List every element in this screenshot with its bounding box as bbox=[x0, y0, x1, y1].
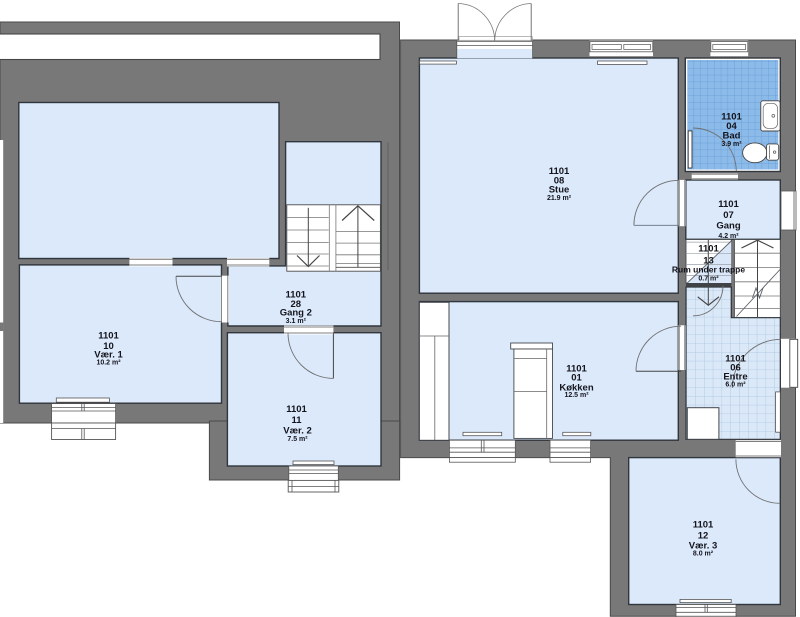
svg-text:11: 11 bbox=[291, 415, 302, 426]
svg-text:Vær. 2: Vær. 2 bbox=[283, 426, 312, 437]
svg-text:8.0 m²: 8.0 m² bbox=[693, 551, 714, 558]
svg-text:Bad: Bad bbox=[723, 131, 741, 142]
svg-text:1101: 1101 bbox=[98, 331, 119, 342]
svg-text:6.0 m²: 6.0 m² bbox=[725, 382, 746, 389]
svg-text:7.5 m²: 7.5 m² bbox=[287, 436, 308, 443]
svg-text:21.9 m²: 21.9 m² bbox=[547, 195, 572, 202]
svg-text:10.2 m²: 10.2 m² bbox=[96, 360, 121, 367]
svg-text:1101: 1101 bbox=[693, 520, 714, 531]
svg-text:07: 07 bbox=[723, 210, 734, 221]
svg-text:Rum under trappe: Rum under trappe bbox=[672, 265, 745, 275]
svg-text:3.1 m²: 3.1 m² bbox=[286, 318, 307, 325]
svg-text:12.5 m²: 12.5 m² bbox=[564, 392, 589, 399]
svg-text:Gang 2: Gang 2 bbox=[280, 308, 312, 319]
svg-text:0.7 m²: 0.7 m² bbox=[698, 276, 719, 283]
svg-text:1101: 1101 bbox=[718, 199, 739, 210]
svg-text:3.9 m²: 3.9 m² bbox=[721, 141, 742, 148]
svg-text:Gang: Gang bbox=[716, 221, 740, 232]
svg-text:1101: 1101 bbox=[286, 404, 307, 415]
svg-text:4.2 m²: 4.2 m² bbox=[718, 233, 739, 240]
svg-text:1101: 1101 bbox=[698, 244, 719, 255]
